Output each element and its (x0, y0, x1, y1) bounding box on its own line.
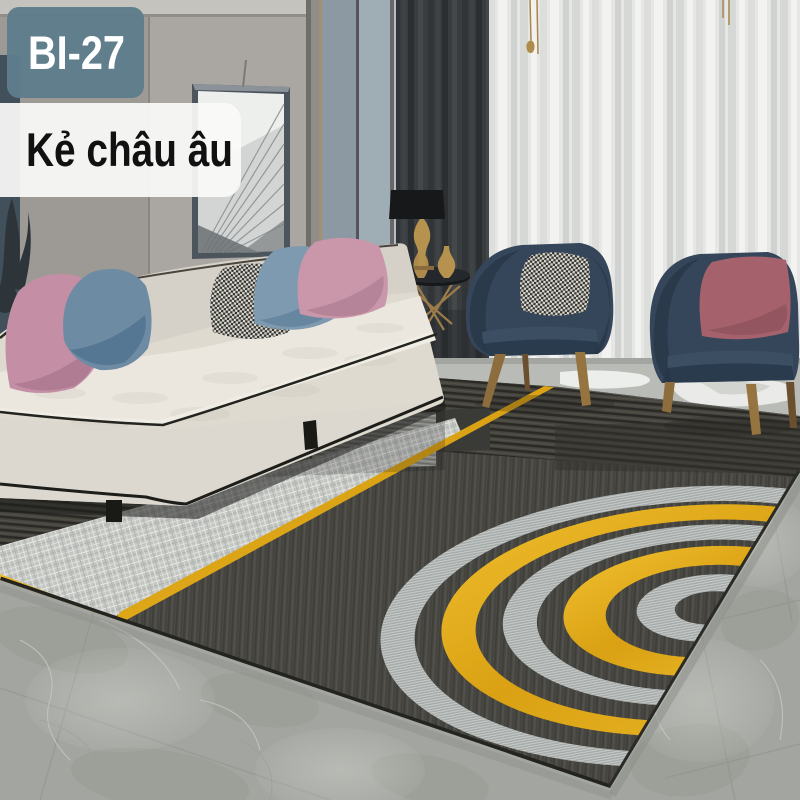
svg-text:Kẻ châu âu: Kẻ châu âu (26, 123, 233, 176)
svg-text:BI-27: BI-27 (28, 26, 125, 79)
